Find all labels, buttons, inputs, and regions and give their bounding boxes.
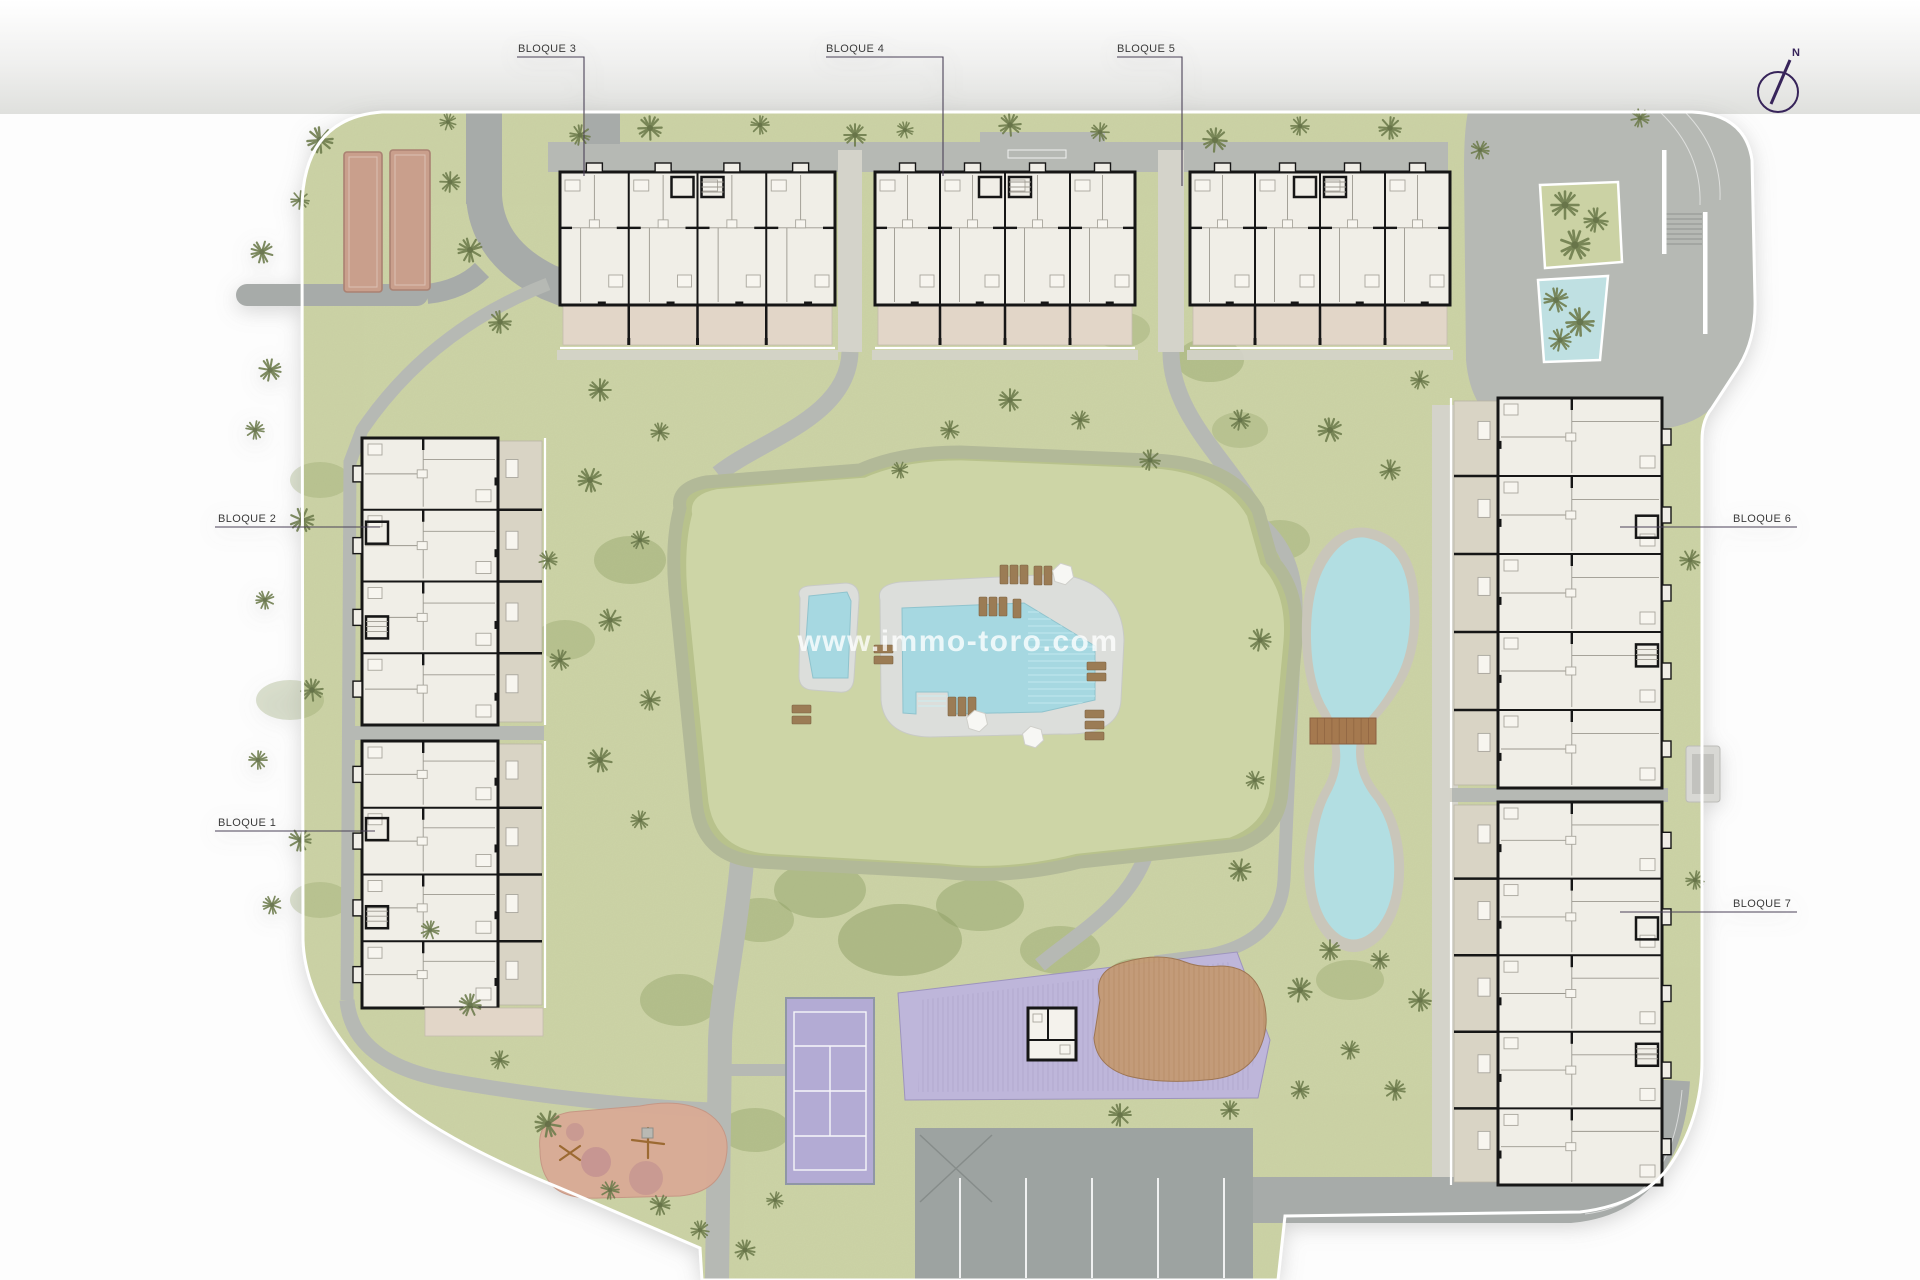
entrance-plaza: [1464, 112, 1755, 432]
label-bloque-7: BLOQUE 7: [1733, 898, 1791, 910]
building-bloque-2: [353, 438, 545, 725]
gap-gravel-2: [1158, 150, 1184, 352]
site: BLOQUE 3 BLOQUE 4 BLOQUE 5 BLOQUE 2 BLOQ…: [215, 43, 1797, 1280]
building-bloque-4: [872, 163, 1138, 360]
label-bloque-1: BLOQUE 1: [218, 817, 276, 829]
water-feature: [1538, 276, 1608, 362]
label-bloque-6: BLOQUE 6: [1733, 513, 1791, 525]
plaza-stairs: [1666, 214, 1702, 244]
bloque1-south-terrace: [425, 1008, 543, 1036]
site-plan-image: BLOQUE 3 BLOQUE 4 BLOQUE 5 BLOQUE 2 BLOQ…: [0, 0, 1920, 1280]
gap-gravel-1: [838, 150, 862, 352]
pool-house: [1028, 1008, 1076, 1060]
top-gradient-band: [0, 0, 1920, 114]
label-bloque-2: BLOQUE 2: [218, 513, 276, 525]
building-bloque-3: [557, 163, 838, 360]
gap-walk-b6-b7: [1452, 788, 1668, 802]
building-bloque-7: [1451, 802, 1671, 1185]
label-bloque-3: BLOQUE 3: [518, 43, 576, 55]
wood-deck: [1094, 957, 1266, 1081]
label-bloque-5: BLOQUE 5: [1117, 43, 1175, 55]
building-bloque-1: [353, 741, 545, 1008]
label-bloque-4: BLOQUE 4: [826, 43, 884, 55]
site-plan-page: BLOQUE 3 BLOQUE 4 BLOQUE 5 BLOQUE 2 BLOQ…: [0, 0, 1920, 1280]
top-road-stub: [585, 112, 620, 144]
compass-north-label: N: [1792, 47, 1800, 59]
pond-bridge: [1310, 718, 1376, 744]
building-bloque-5: [1187, 163, 1453, 360]
north-walkway: [548, 142, 1448, 172]
plaza-wall-2: [1703, 212, 1708, 334]
building-bloque-6: [1451, 398, 1671, 788]
plaza-wall-1: [1662, 150, 1667, 254]
playground: [540, 1103, 728, 1198]
gap-walk-b2-b1: [348, 726, 544, 740]
watermark: www.immo-toro.com: [796, 625, 1118, 658]
